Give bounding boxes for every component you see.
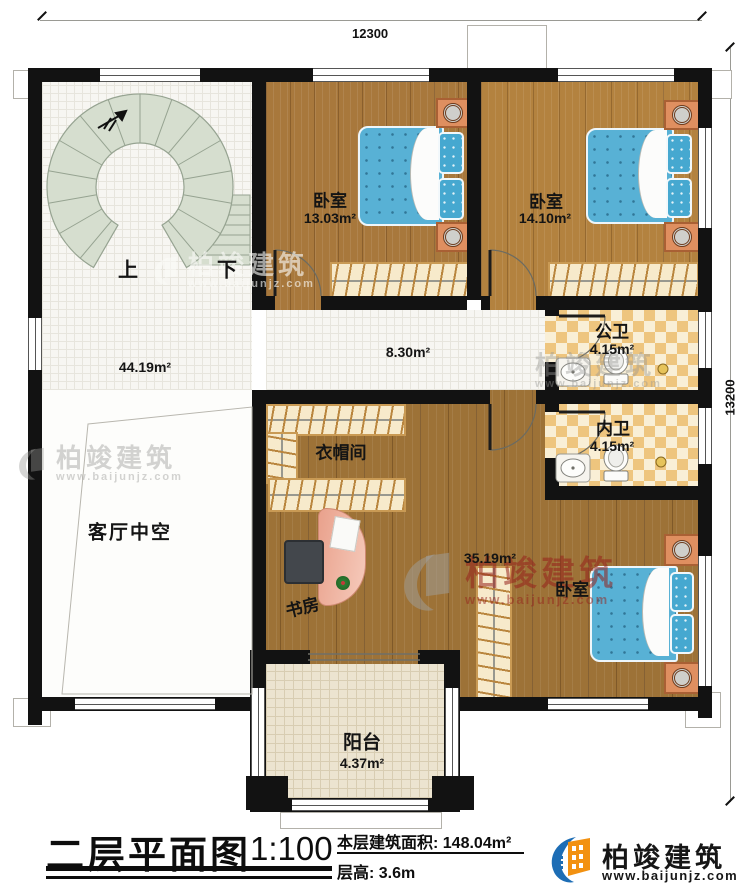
cloakroom-wardrobe-bottom	[268, 478, 406, 512]
window	[548, 698, 648, 710]
master-label: 卧室	[555, 576, 589, 601]
master-nightstand	[664, 534, 700, 566]
wall-segment	[28, 68, 42, 725]
bedroom1-pillow	[438, 178, 464, 220]
floor-height-text: 层高: 3.6m	[337, 859, 415, 883]
bedroom2-area: 14.10m²	[519, 210, 571, 226]
master-bed-sheet	[642, 568, 669, 656]
bedroom2-wardrobe	[548, 262, 699, 300]
balcony-rail-outline	[280, 812, 442, 829]
top-dimension-tick	[697, 11, 707, 21]
wall-segment	[536, 390, 712, 404]
public-bath-area: 4.15m²	[590, 341, 634, 357]
bedroom2-nightstand	[664, 100, 700, 130]
cloakroom-wardrobe-side	[266, 432, 298, 484]
bedroom2-pillow	[666, 134, 692, 174]
window	[698, 128, 712, 228]
bedroom2-pillow	[666, 178, 692, 218]
bedroom1-nightstand	[436, 98, 470, 128]
wall-pillar	[246, 776, 288, 810]
wall-segment	[252, 390, 490, 404]
wall-segment	[536, 296, 712, 310]
brand-website: www.baijunjz.com	[602, 868, 738, 883]
window	[698, 408, 712, 464]
titleblock-divider	[337, 852, 524, 854]
cloakroom-label: 衣帽间	[316, 439, 367, 464]
living-void-label: 客厅中空	[88, 518, 172, 545]
window	[698, 556, 712, 686]
window	[698, 312, 712, 368]
bedroom2-bed-sheet	[638, 130, 667, 218]
master-wardrobe	[476, 566, 512, 700]
floor-area-text: 本层建筑面积: 148.04m²	[337, 829, 511, 853]
top-dimension-label: 12300	[352, 26, 388, 41]
spiral-staircase	[42, 82, 252, 392]
bedroom1-wardrobe	[330, 262, 471, 300]
right-dimension-label: 13200	[723, 379, 738, 415]
desk-paper	[329, 516, 360, 552]
wall-segment	[545, 486, 712, 500]
master-area: 35.19m²	[464, 550, 516, 566]
floor-plan-page: 12300 13200	[0, 0, 750, 890]
bedroom1-label: 卧室	[313, 187, 347, 212]
study-monitor	[284, 540, 324, 584]
hallway-area: 44.19m²	[119, 359, 171, 375]
stair-up-label: 上	[118, 254, 138, 283]
wall-segment	[545, 296, 559, 316]
master-pillow	[670, 572, 694, 612]
window	[100, 68, 200, 82]
inner-bath-label: 内卫	[596, 415, 630, 440]
window	[445, 688, 459, 776]
title-underline-thin	[46, 876, 332, 879]
top-dimension-line	[40, 20, 702, 21]
master-nightstand	[664, 662, 700, 694]
window	[28, 318, 42, 370]
window	[251, 688, 265, 776]
bedroom1-pillow	[438, 132, 464, 174]
stair-down-label: 下	[217, 254, 237, 283]
bedroom1-nightstand	[436, 222, 470, 252]
wall-segment	[321, 296, 467, 310]
balcony-area: 4.37m²	[340, 755, 384, 771]
desk-plant	[336, 576, 350, 590]
drawing-scale: 1:100	[250, 830, 333, 868]
corridor-area: 8.30m²	[386, 344, 430, 360]
window	[313, 68, 429, 82]
bedroom1-bed-sheet	[410, 128, 439, 220]
bedroom2-label: 卧室	[529, 188, 563, 213]
window	[75, 698, 215, 710]
master-pillow	[670, 614, 694, 654]
bedroom1-area: 13.03m²	[304, 210, 356, 226]
window	[558, 68, 674, 82]
wall-segment	[252, 82, 266, 310]
wall-pillar	[432, 776, 474, 810]
wall-segment	[545, 362, 559, 412]
window	[292, 799, 428, 811]
public-bath-label: 公卫	[595, 318, 629, 343]
balcony-label: 阳台	[343, 728, 381, 755]
inner-bath-area: 4.15m²	[590, 438, 634, 454]
wall-segment	[252, 296, 275, 310]
wall-segment	[481, 296, 490, 310]
bedroom2-nightstand	[664, 222, 700, 252]
wall-segment	[252, 390, 266, 652]
right-dimension-line	[730, 48, 731, 802]
wall-segment	[467, 82, 481, 300]
brand-logo-icon	[544, 834, 596, 886]
